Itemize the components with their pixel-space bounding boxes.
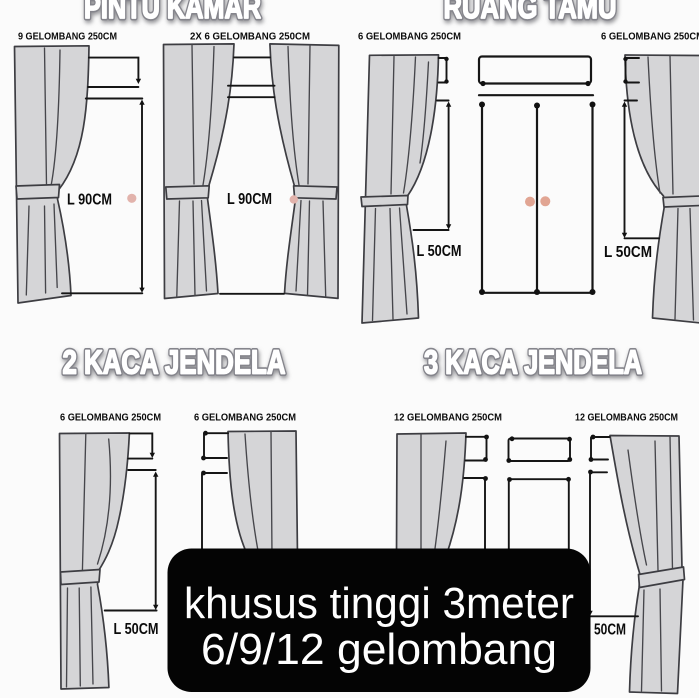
svg-text:L 90CM: L 90CM [227, 191, 272, 208]
svg-text:L 50CM: L 50CM [417, 243, 462, 260]
svg-text:L 90CM: L 90CM [67, 192, 112, 209]
svg-text:12 GELOMBANG 250CM: 12 GELOMBANG 250CM [575, 412, 678, 424]
svg-text:2 KACA JENDELA: 2 KACA JENDELA [63, 344, 286, 381]
svg-text:12 GELOMBANG 250CM: 12 GELOMBANG 250CM [394, 412, 502, 424]
svg-text:2X 6 GELOMBANG 250CM: 2X 6 GELOMBANG 250CM [190, 31, 310, 43]
svg-text:6 GELOMBANG 250CM: 6 GELOMBANG 250CM [60, 412, 161, 424]
svg-text:6 GELOMBANG 250CM: 6 GELOMBANG 250CM [601, 31, 699, 43]
svg-text:PINTU KAMAR: PINTU KAMAR [84, 0, 261, 25]
svg-text:6 GELOMBANG 250CM: 6 GELOMBANG 250CM [358, 31, 461, 43]
svg-text:RUANG TAMU: RUANG TAMU [444, 0, 617, 25]
svg-text:6 GELOMBANG 250CM: 6 GELOMBANG 250CM [194, 412, 296, 424]
svg-text:50CM: 50CM [594, 622, 626, 639]
svg-text:9 GELOMBANG 250CM: 9 GELOMBANG 250CM [18, 31, 117, 43]
svg-text:6/9/12 gelombang: 6/9/12 gelombang [201, 625, 557, 674]
svg-text:L 50CM: L 50CM [114, 621, 159, 638]
svg-text:3 KACA JENDELA: 3 KACA JENDELA [424, 344, 642, 381]
svg-text:khusus tinggi 3meter: khusus tinggi 3meter [184, 579, 574, 628]
svg-text:L 50CM: L 50CM [604, 244, 652, 261]
